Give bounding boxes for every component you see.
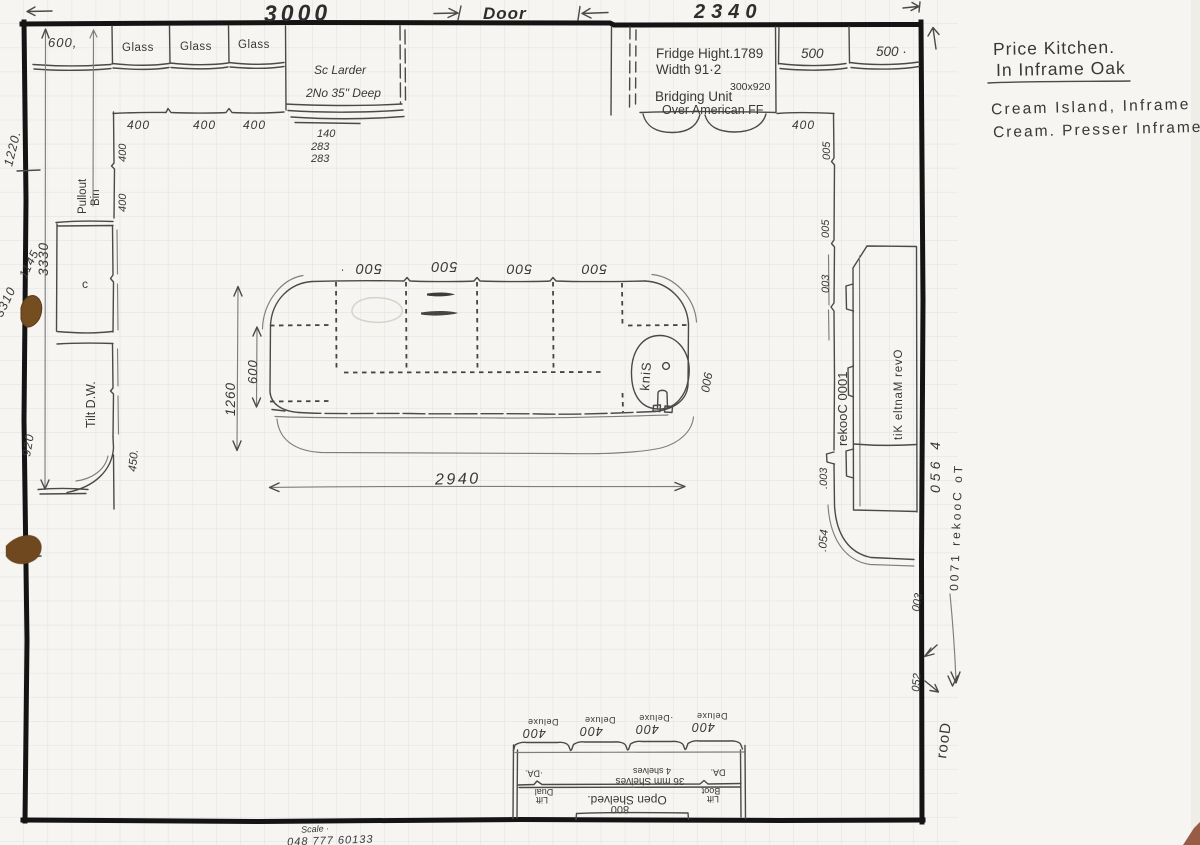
svg-text:1260: 1260 xyxy=(223,382,238,416)
svg-text:400: 400 xyxy=(243,118,266,132)
svg-text:2940: 2940 xyxy=(434,470,481,488)
svg-text:400: 400 xyxy=(691,720,715,734)
svg-text:500: 500 xyxy=(801,46,824,61)
svg-text:In Inframe Oak: In Inframe Oak xyxy=(996,58,1126,80)
svg-text:Glass: Glass xyxy=(122,42,154,54)
svg-text:Pullout: Pullout xyxy=(77,178,89,214)
svg-text:500: 500 xyxy=(506,262,532,278)
svg-text:Deluxe: Deluxe xyxy=(584,715,615,725)
svg-text:052: 052 xyxy=(910,673,924,692)
svg-text:500: 500 xyxy=(355,260,382,276)
svg-text:056 4: 056 4 xyxy=(927,438,943,493)
svg-text:005: 005 xyxy=(820,219,832,238)
svg-text:.003: .003 xyxy=(818,467,830,489)
svg-text:Fridge Hight.1789: Fridge Hight.1789 xyxy=(656,46,763,61)
svg-text:400: 400 xyxy=(117,143,129,162)
svg-text:400: 400 xyxy=(193,118,216,132)
svg-text:Bin: Bin xyxy=(90,189,102,206)
svg-text:283: 283 xyxy=(310,141,330,153)
svg-text:Tilt D.W.: Tilt D.W. xyxy=(84,381,98,428)
svg-text:450.: 450. xyxy=(127,449,141,472)
svg-text:·Deluxe: ·Deluxe xyxy=(639,713,674,723)
svg-text:400: 400 xyxy=(117,193,129,212)
svg-text:Door: Door xyxy=(483,4,527,23)
svg-text:·DA.: ·DA. xyxy=(525,769,543,779)
svg-text:400: 400 xyxy=(127,118,150,132)
svg-text:Glass: Glass xyxy=(238,39,270,51)
svg-text:500: 500 xyxy=(430,258,457,274)
svg-text:003: 003 xyxy=(820,274,832,293)
svg-text:tiK eltnaM revO: tiK eltnaM revO xyxy=(893,349,905,440)
svg-text:400: 400 xyxy=(792,118,815,132)
svg-text:2340: 2340 xyxy=(693,1,763,23)
svg-text:400: 400 xyxy=(635,722,659,736)
svg-text:3000: 3000 xyxy=(264,0,332,26)
svg-text:400: 400 xyxy=(579,724,603,738)
svg-text:Width 91·2: Width 91·2 xyxy=(656,62,721,77)
svg-text:400: 400 xyxy=(522,726,546,740)
svg-text:DA.: DA. xyxy=(710,768,725,778)
svg-text:Lift: Lift xyxy=(536,795,549,805)
svg-text:c: c xyxy=(82,277,88,291)
svg-text:Price Kitchen.: Price Kitchen. xyxy=(993,37,1115,59)
svg-text:·: · xyxy=(341,264,345,278)
svg-text:600: 600 xyxy=(245,359,260,384)
svg-text:Sc Larder: Sc Larder xyxy=(314,63,367,77)
svg-text:300x920: 300x920 xyxy=(730,81,770,93)
svg-text:kniS: kniS xyxy=(637,361,654,391)
svg-text:Deluxe: Deluxe xyxy=(696,711,727,721)
svg-text:600,: 600, xyxy=(48,35,77,50)
svg-text:Lift: Lift xyxy=(707,794,720,804)
svg-text:005: 005 xyxy=(821,141,833,160)
svg-text:283: 283 xyxy=(310,153,330,165)
svg-text:Scale ·: Scale · xyxy=(301,823,330,834)
svg-text:Over American FF: Over American FF xyxy=(662,103,764,117)
svg-text:.054: .054 xyxy=(817,529,831,552)
svg-text:140: 140 xyxy=(317,128,336,140)
svg-text:4 shelves: 4 shelves xyxy=(632,766,671,776)
svg-text:500: 500 xyxy=(581,262,607,278)
svg-text:Bridging Unit: Bridging Unit xyxy=(655,89,733,104)
svg-text:2No 35" Deep: 2No 35" Deep xyxy=(305,86,381,100)
svg-text:500 ·: 500 · xyxy=(876,44,907,59)
svg-text:048 777 60133: 048 777 60133 xyxy=(287,833,374,845)
svg-text:Deluxe: Deluxe xyxy=(527,717,558,727)
svg-text:Glass: Glass xyxy=(180,41,212,53)
